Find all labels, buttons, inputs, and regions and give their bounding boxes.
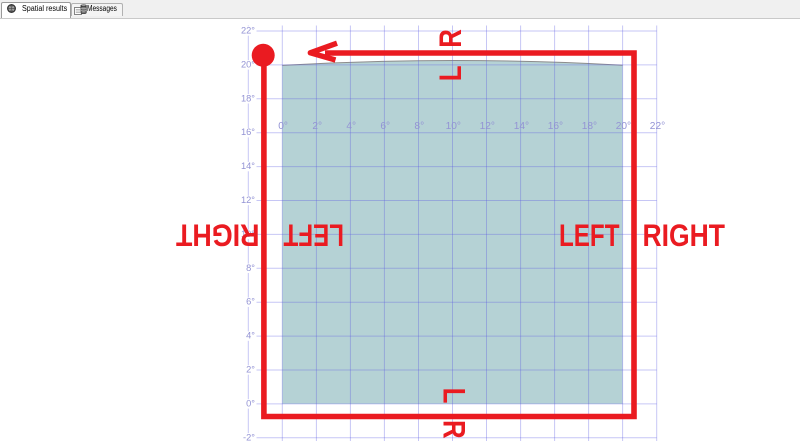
svg-text:RIGHT: RIGHT [176, 217, 260, 253]
svg-text:14°: 14° [514, 121, 529, 132]
svg-text:2°: 2° [246, 365, 255, 375]
svg-text:16°: 16° [548, 121, 563, 132]
svg-text:16°: 16° [241, 127, 255, 137]
svg-text:0°: 0° [246, 398, 255, 408]
svg-text:8°: 8° [414, 121, 424, 132]
svg-text:18°: 18° [241, 93, 255, 103]
svg-text:22°: 22° [241, 26, 255, 36]
svg-text:LEFT: LEFT [284, 217, 345, 253]
svg-text:18°: 18° [582, 121, 597, 132]
svg-text:L: L [436, 388, 471, 404]
svg-text:12°: 12° [241, 195, 255, 205]
svg-text:10°: 10° [446, 121, 461, 132]
svg-text:0°: 0° [278, 121, 288, 132]
svg-text:14°: 14° [241, 161, 255, 171]
svg-text:-2°: -2° [243, 432, 255, 442]
svg-text:4°: 4° [346, 121, 356, 132]
svg-text:4°: 4° [246, 331, 255, 341]
svg-text:R: R [436, 420, 471, 439]
svg-text:12°: 12° [480, 121, 495, 132]
svg-text:2°: 2° [312, 121, 322, 132]
svg-text:22°: 22° [650, 121, 665, 132]
svg-text:6°: 6° [380, 121, 390, 132]
svg-text:20°: 20° [616, 121, 631, 132]
svg-text:8°: 8° [246, 263, 255, 273]
svg-text:L: L [433, 65, 468, 81]
svg-text:20°: 20° [241, 59, 255, 69]
svg-text:RIGHT: RIGHT [643, 217, 726, 253]
svg-text:R: R [433, 29, 468, 48]
svg-text:LEFT: LEFT [559, 217, 620, 253]
svg-text:6°: 6° [246, 297, 255, 307]
